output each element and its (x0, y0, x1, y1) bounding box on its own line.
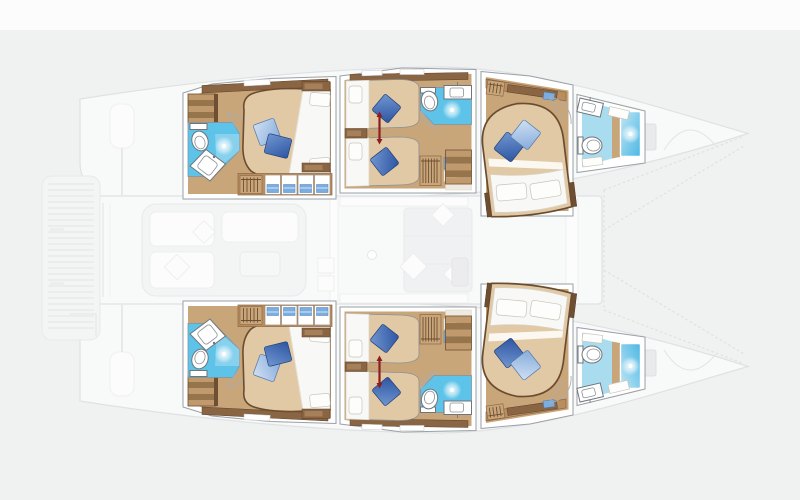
white-pillow (309, 92, 330, 107)
hanging-locker (240, 176, 262, 194)
locker-with-clothes (298, 175, 314, 195)
galley-counter-bottom (340, 294, 468, 303)
locker-with-clothes (265, 175, 281, 195)
catamaran-deck-plan (0, 0, 800, 500)
bedside-shelf (345, 129, 367, 139)
galley-counter-top (340, 197, 468, 206)
hanging-locker (486, 80, 505, 96)
toilet (578, 137, 602, 154)
aft-swim-platform (42, 176, 100, 340)
deck-plan-canvas (0, 0, 800, 500)
aft-cockpit-lounge (142, 204, 306, 296)
shower-sparkle (215, 137, 234, 156)
stairs-to-saloon (446, 150, 472, 190)
bedside-shelf (302, 82, 330, 92)
saloon-table (452, 258, 468, 286)
twin-berth (346, 80, 419, 130)
entry-stairs (188, 94, 218, 124)
shower-sparkle (443, 101, 462, 120)
foredeck-trampoline (604, 137, 744, 363)
bedside-shelf (302, 163, 330, 172)
locker-with-clothes (315, 175, 331, 195)
aft-cabin (183, 77, 336, 200)
hanging-locker (420, 156, 441, 186)
wardrobe (238, 174, 332, 196)
saloon-post (368, 251, 377, 260)
twin-berth (346, 137, 419, 187)
forward-cabin (474, 72, 577, 221)
mid-cabin (340, 68, 476, 193)
white-pillow (496, 183, 527, 202)
locker-with-clothes (282, 175, 298, 195)
